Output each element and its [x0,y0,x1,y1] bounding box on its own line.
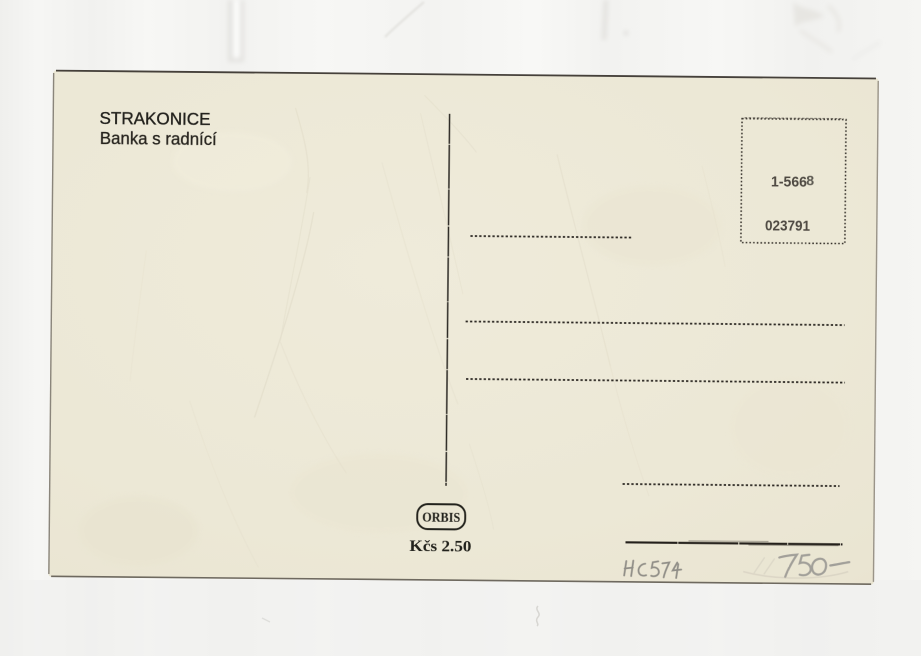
svg-text:Banka s radnící: Banka s radnící [100,128,217,149]
svg-text:023791: 023791 [765,218,810,234]
svg-text:ORBIS: ORBIS [422,511,460,526]
svg-text:STRAKONICE: STRAKONICE [99,108,210,129]
svg-text:1-566: 1-566 [771,174,807,190]
svg-text:Kčs 2.50: Kčs 2.50 [409,538,471,556]
svg-text:8: 8 [806,173,814,189]
